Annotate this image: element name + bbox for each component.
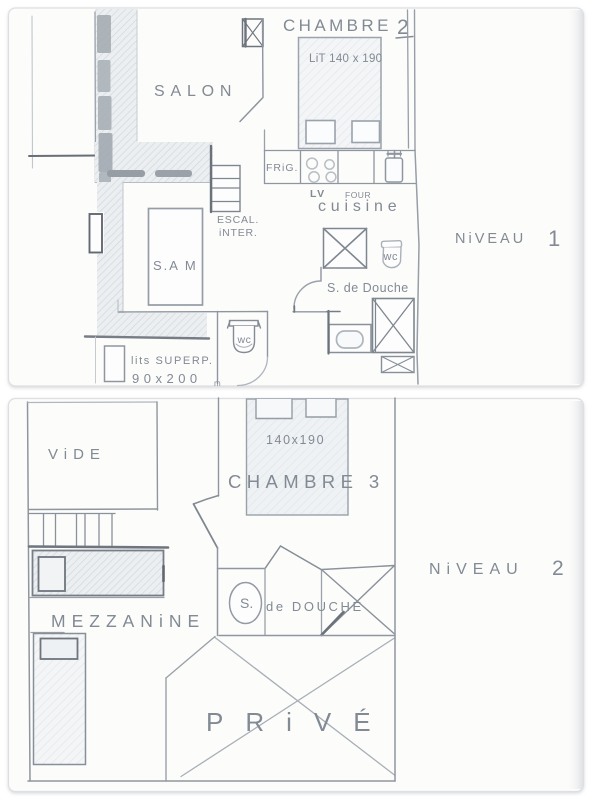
svg-text:S. de Douche: S. de Douche [327,281,409,295]
svg-text:m: m [214,379,221,388]
svg-text:SALON: SALON [154,83,237,100]
svg-text:LiT 140 x 190: LiT 140 x 190 [309,53,382,65]
svg-text:lits SUPERP.: lits SUPERP. [131,355,214,367]
svg-text:S.A M: S.A M [153,258,198,273]
svg-text:de DOUCHE: de DOUCHE [266,599,364,614]
svg-text:iNTER.: iNTER. [219,227,258,239]
svg-text:90x200: 90x200 [132,371,202,386]
svg-text:2: 2 [552,557,564,580]
svg-text:ESCAL.: ESCAL. [217,214,259,226]
svg-text:wc: wc [383,251,398,263]
svg-text:ViDE: ViDE [48,446,106,463]
svg-text:NiVEAU: NiVEAU [455,231,526,247]
svg-text:140x190: 140x190 [266,433,325,447]
svg-text:wc: wc [237,334,252,346]
svg-text:CHAMBRE: CHAMBRE [283,16,392,35]
svg-text:cuisine: cuisine [318,198,401,215]
svg-text:FRiG.: FRiG. [266,162,298,174]
svg-text:NiVEAU: NiVEAU [429,561,524,578]
svg-text:MEZZANiNE: MEZZANiNE [51,611,205,631]
svg-text:S.: S. [240,595,253,611]
svg-text:1: 1 [548,226,560,251]
svg-text:PRiVÉ: PRiVÉ [206,707,393,737]
svg-text:CHAMBRE 3: CHAMBRE 3 [228,471,385,492]
